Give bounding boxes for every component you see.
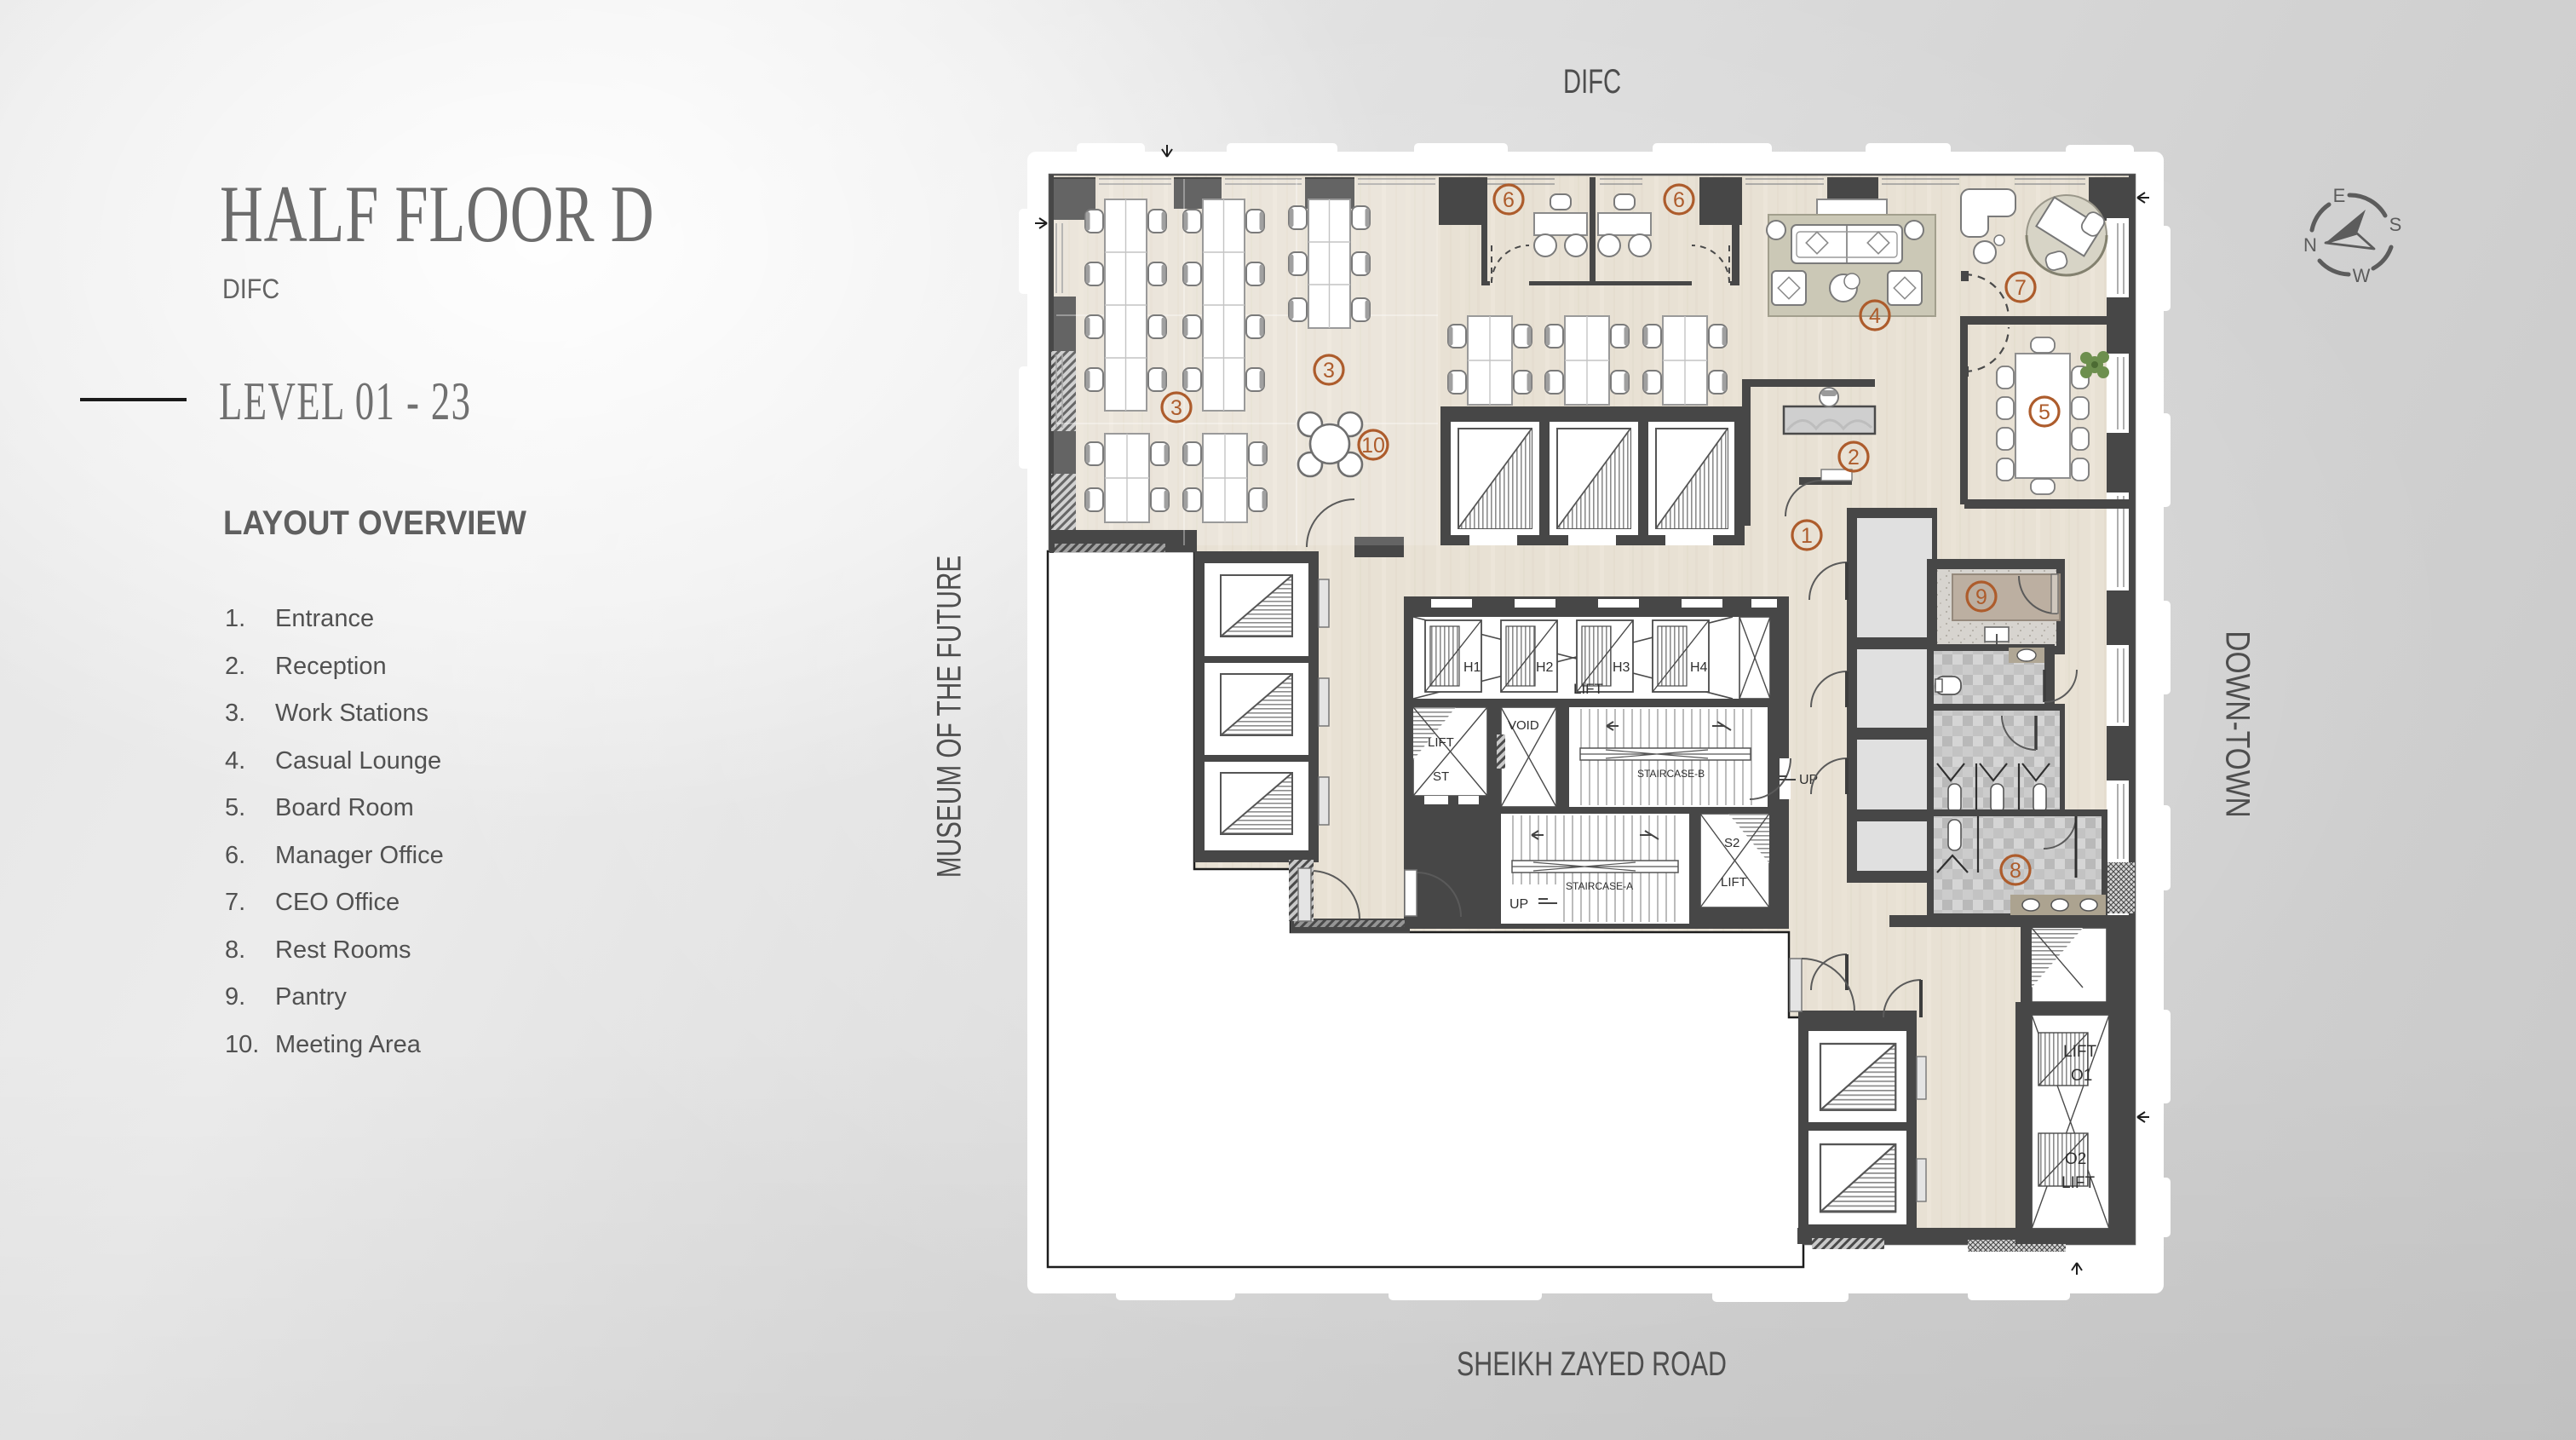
svg-text:4: 4 xyxy=(1869,304,1881,328)
svg-text:5: 5 xyxy=(2038,400,2050,424)
svg-text:H2: H2 xyxy=(1536,660,1554,675)
svg-text:H1: H1 xyxy=(1463,660,1481,675)
svg-text:UP: UP xyxy=(1799,773,1818,787)
svg-text:E: E xyxy=(2333,185,2346,206)
svg-text:9: 9 xyxy=(1975,585,1987,609)
svg-text:10: 10 xyxy=(1361,434,1385,458)
svg-text:STAIRCASE-A: STAIRCASE-A xyxy=(1566,880,1633,892)
svg-text:O2: O2 xyxy=(2065,1150,2086,1168)
svg-text:LIFT: LIFT xyxy=(1428,735,1454,750)
svg-text:STAIRCASE-B: STAIRCASE-B xyxy=(1637,768,1705,780)
svg-text:UP: UP xyxy=(1509,897,1528,912)
svg-text:N: N xyxy=(2303,234,2317,256)
svg-text:1: 1 xyxy=(1801,524,1813,548)
svg-text:H3: H3 xyxy=(1613,660,1630,675)
svg-text:W: W xyxy=(2353,265,2371,286)
svg-text:6: 6 xyxy=(1673,188,1685,212)
svg-text:8: 8 xyxy=(2010,859,2021,883)
svg-text:ST: ST xyxy=(1433,769,1449,784)
svg-text:3: 3 xyxy=(1323,359,1335,383)
svg-text:LIFT: LIFT xyxy=(2063,1043,2096,1061)
svg-text:S: S xyxy=(2389,214,2402,235)
svg-text:LIFT: LIFT xyxy=(1721,875,1747,890)
svg-text:LIFT: LIFT xyxy=(1573,681,1603,697)
svg-text:6: 6 xyxy=(1503,188,1515,212)
svg-text:3: 3 xyxy=(1170,396,1182,420)
svg-text:H4: H4 xyxy=(1690,660,1708,675)
svg-text:O1: O1 xyxy=(2071,1067,2092,1085)
svg-text:VOID: VOID xyxy=(1508,718,1539,733)
svg-text:2: 2 xyxy=(1848,446,1860,469)
svg-text:7: 7 xyxy=(2015,276,2027,300)
svg-text:LIFT: LIFT xyxy=(2061,1174,2095,1192)
svg-text:S2: S2 xyxy=(1724,836,1739,850)
